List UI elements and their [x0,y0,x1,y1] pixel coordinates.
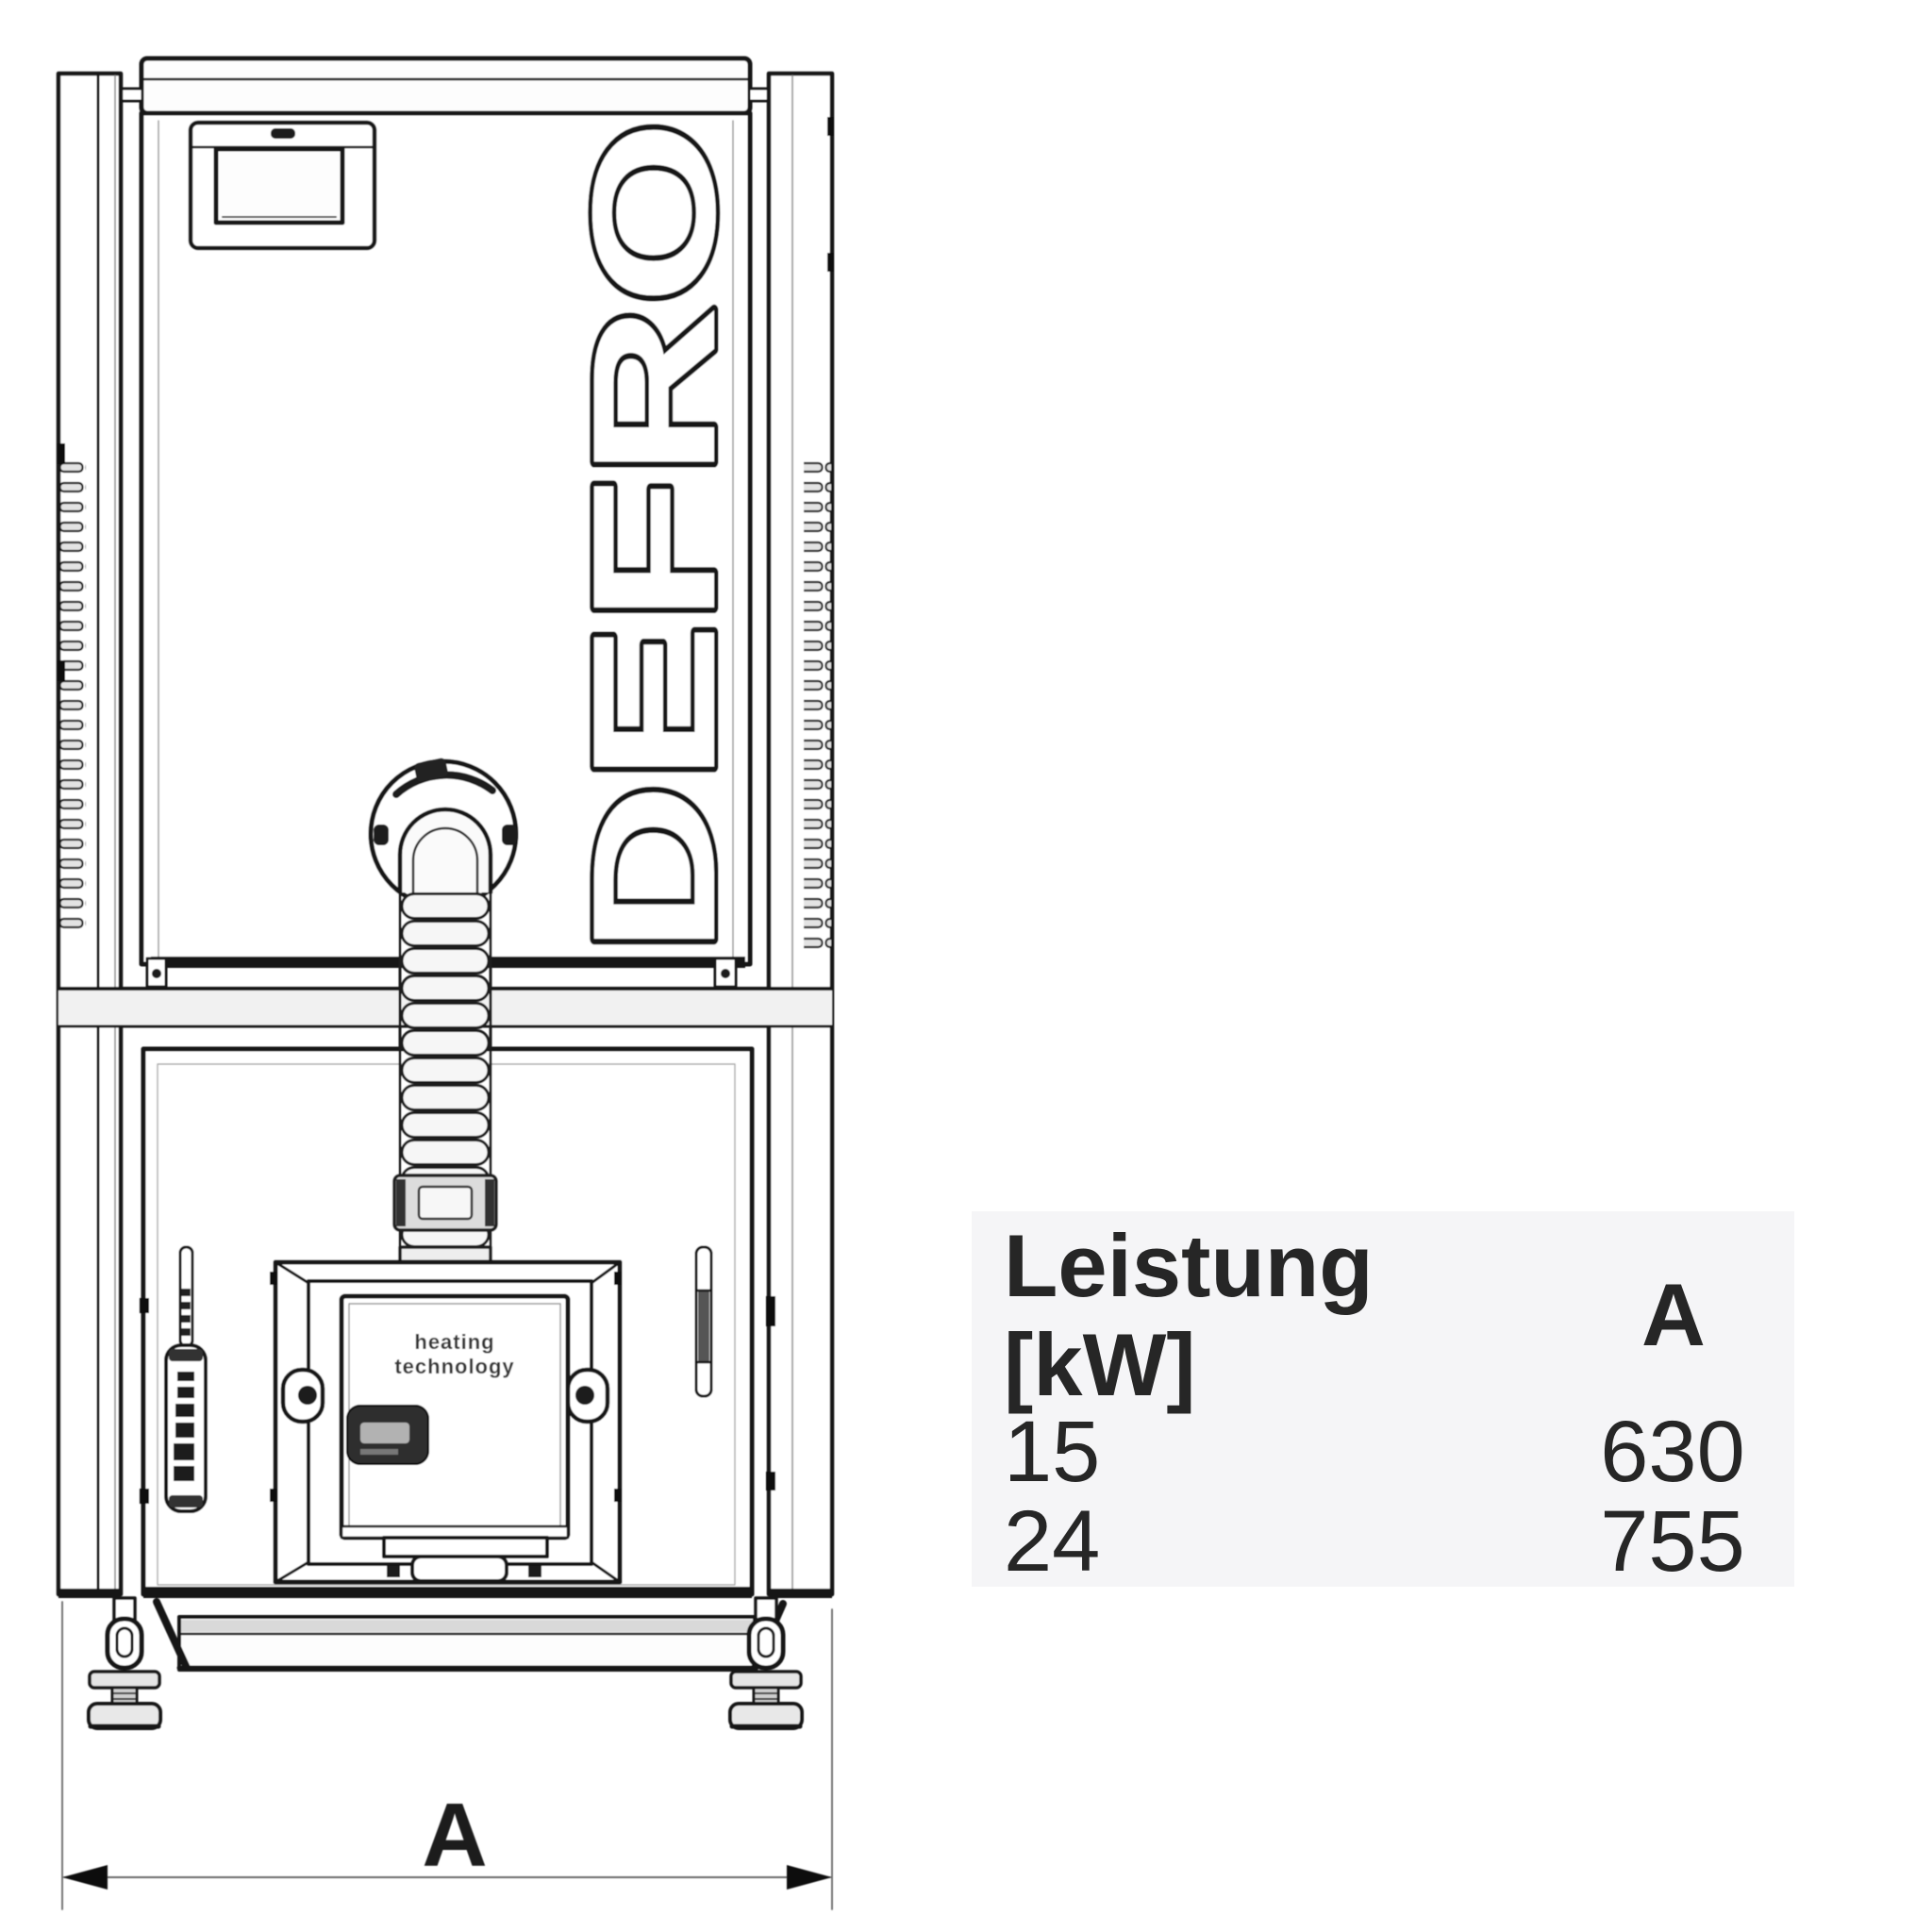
defro-badge [347,1406,428,1464]
boiler-dimension-sheet: DEFRO [0,0,1932,1932]
flange-bolt-right [502,824,517,845]
defro-logo: DEFRO [558,120,752,955]
dimension-label: A [422,1785,487,1886]
right-vent-louvers [804,456,831,956]
display-screen [216,149,342,223]
left-vent-column [58,74,121,1598]
spec-header-power-line1: Leistung [1004,1215,1374,1317]
flange-bolt-left [374,824,389,845]
lid-bracket-left [120,89,142,101]
display-button [271,128,295,139]
boiler-technical-drawing: DEFRO [0,0,1932,1932]
lid-bracket-right [749,89,770,101]
spec-header-power-line2: [kW] [1004,1314,1196,1416]
flex-flue-pipe [394,892,496,1281]
top-lid [120,58,770,113]
defro-logo-text: DEFRO [558,120,752,955]
dimension-arrow-left [62,1865,108,1890]
controller-display [191,123,375,248]
door-slogan-line2: technology [394,1355,514,1378]
right-slot-indicator [696,1247,711,1396]
pipe-clamp [394,1175,496,1230]
door-hinge-left [283,1370,323,1422]
base-frame [157,1602,783,1670]
door-slogan-line1: heating [414,1330,494,1354]
adjustable-foot-left [89,1598,160,1728]
spec-row2-a: 755 [1583,1492,1762,1591]
spec-table: Leistung [kW] A 15 630 24 755 [972,1211,1794,1587]
spec-header-a: A [1617,1264,1730,1366]
door-hinge-right [568,1370,608,1422]
spec-row1-a: 630 [1583,1403,1762,1502]
burner-assembly: heating technology [270,1262,622,1582]
burner-door: heating technology [341,1296,568,1538]
left-vent-louvers [59,458,86,936]
right-vent-column [769,74,834,1598]
dimension-arrow-right [787,1865,832,1890]
spec-row1-power: 15 [1004,1403,1100,1502]
spec-row2-power: 24 [1004,1492,1100,1591]
flue-flange [371,758,517,907]
